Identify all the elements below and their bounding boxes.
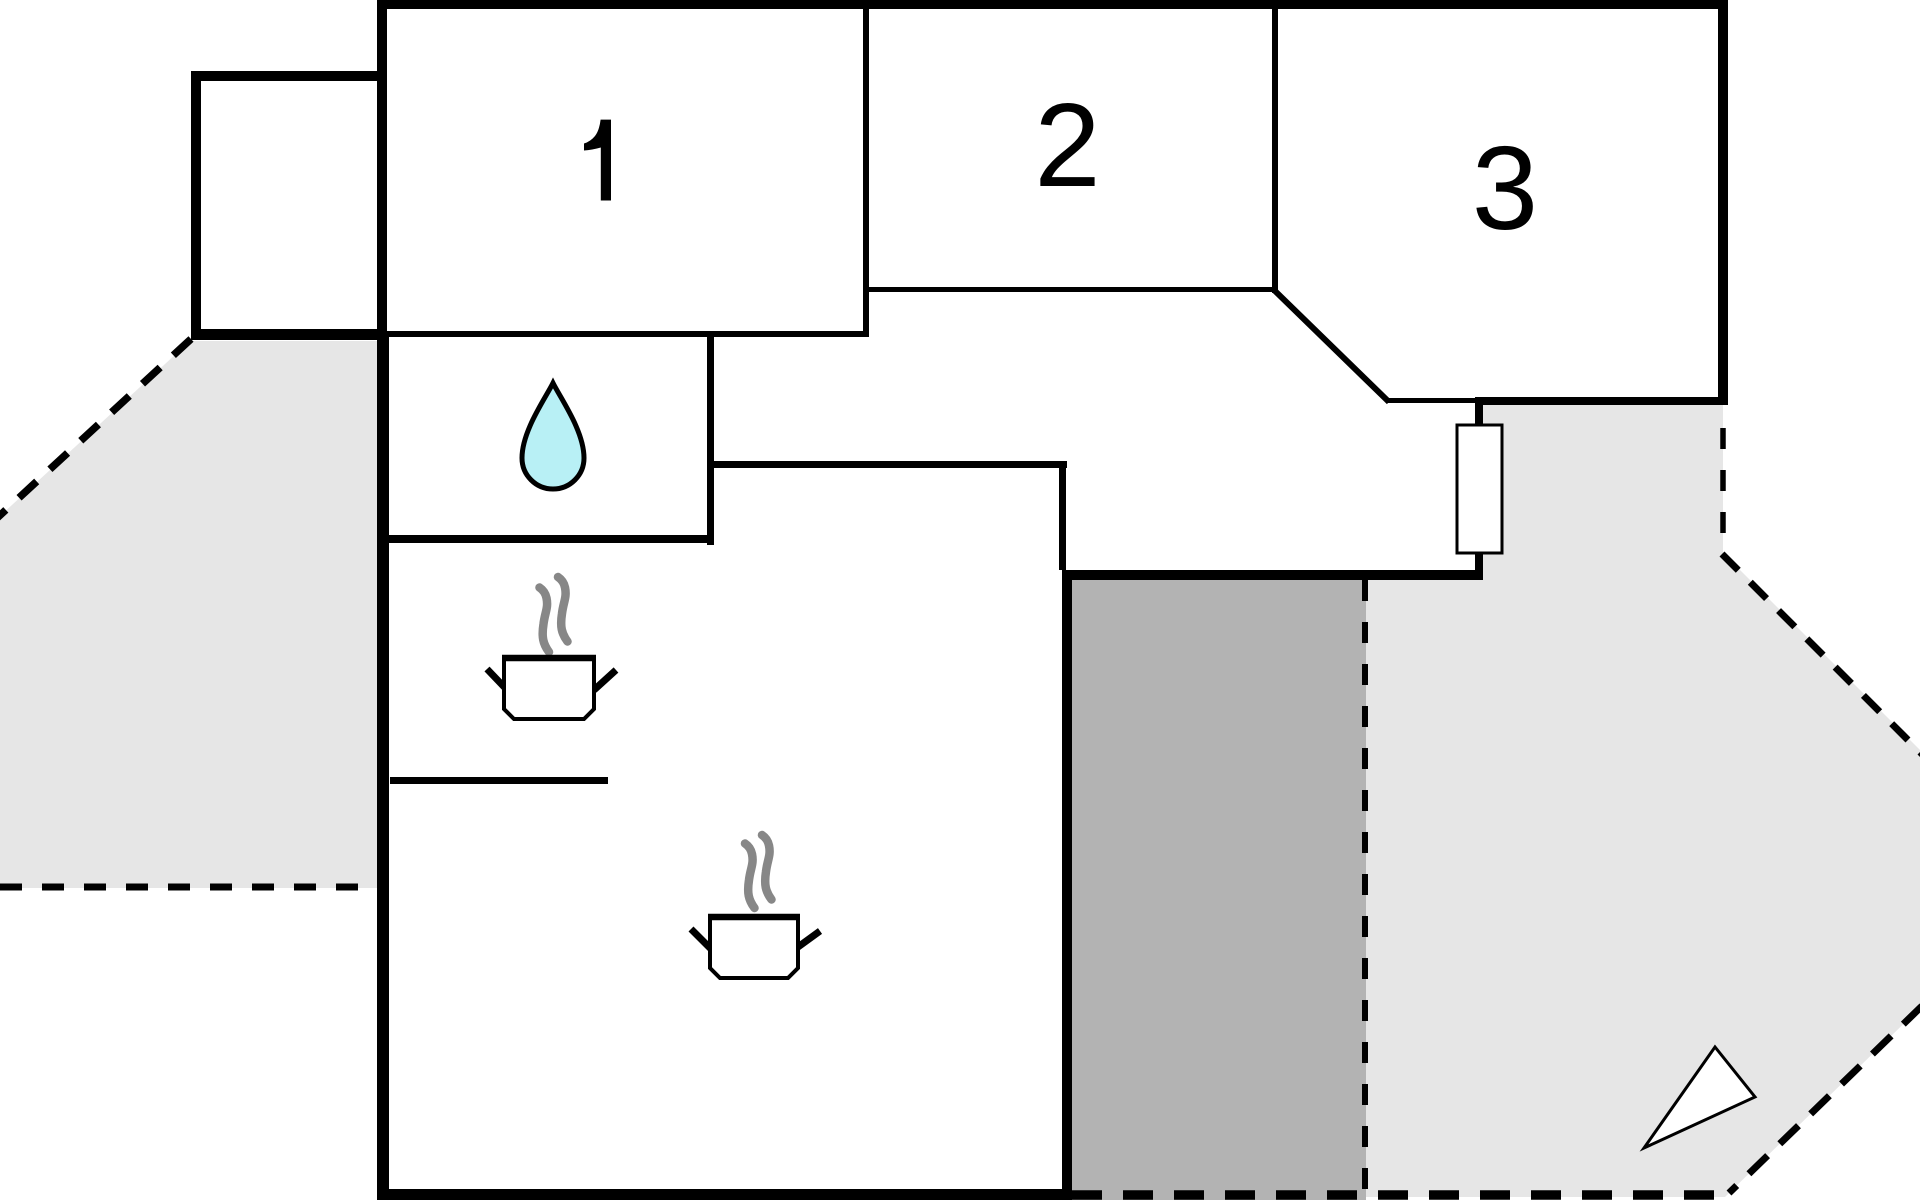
svg-text:3: 3 <box>1472 122 1538 255</box>
svg-text:2: 2 <box>1034 79 1100 212</box>
